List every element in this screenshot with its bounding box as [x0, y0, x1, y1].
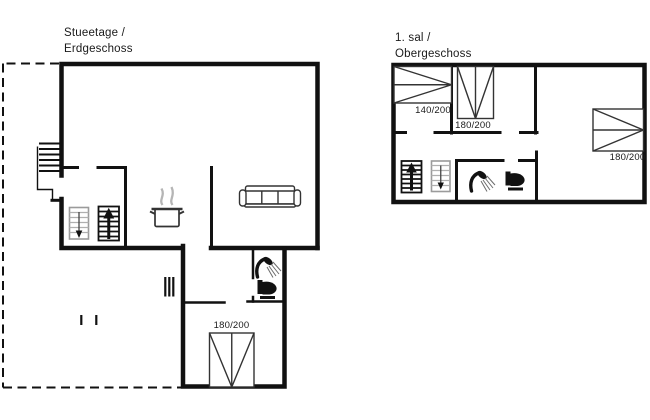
upper-floor-title-line1: 1. sal / [395, 31, 472, 47]
stove-pot-icon [150, 187, 184, 227]
stairs-up-icon [99, 207, 120, 241]
double-bed-icon [210, 333, 255, 387]
upper-floor-title: 1. sal /Obergeschoss [395, 31, 472, 62]
bed-140-icon [394, 67, 452, 104]
ground-floor-plan [3, 64, 318, 388]
ground-floor-title: Stueetage /Erdgeschoss [64, 26, 133, 57]
bed-size-label: 180/200 [605, 152, 650, 163]
stairs-up-icon [402, 161, 422, 193]
upper-floor-title-line2: Obergeschoss [395, 47, 472, 63]
shower-icon [471, 169, 495, 191]
stairs-down-icon [432, 161, 451, 192]
bed-size-label: 180/200 [209, 320, 255, 331]
ground-floor-title-line2: Erdgeschoss [64, 42, 133, 58]
terrace-marks [81, 315, 96, 325]
entrance-steps-icon [38, 144, 61, 201]
bed-180-top-icon [458, 67, 494, 119]
floorplan-drawing [0, 0, 650, 420]
vent-icon [165, 277, 173, 297]
toilet-icon [258, 280, 277, 299]
bed-size-label: 180/200 [450, 120, 496, 131]
bed-180-right-icon [593, 109, 644, 151]
upper-floor-plan [394, 65, 645, 202]
sofa-icon [240, 186, 301, 207]
ground-floor-title-line1: Stueetage / [64, 26, 133, 42]
floorplan-canvas: Stueetage /Erdgeschoss 1. sal /Obergesch… [0, 0, 650, 420]
toilet-icon [506, 172, 525, 191]
stairs-down-icon [70, 208, 89, 240]
bed-size-label: 140/200 [410, 105, 456, 116]
shower-icon [257, 255, 281, 277]
